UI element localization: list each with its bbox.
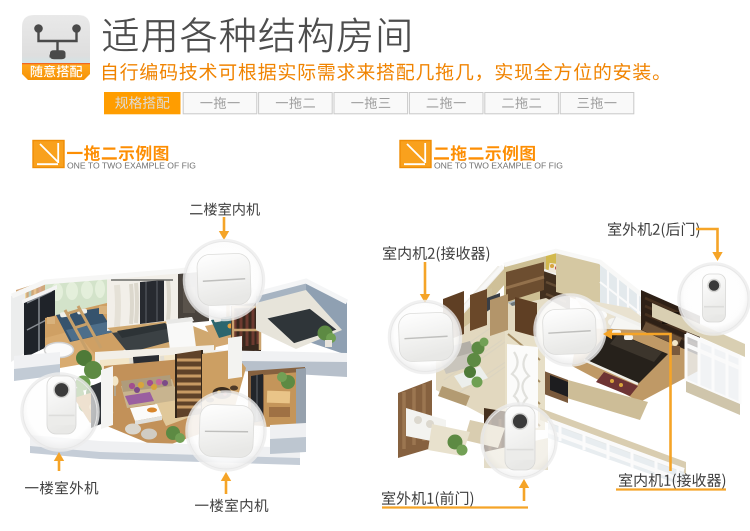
svg-text:ONE TO TWO EXAMPLE OF FIG: ONE TO TWO EXAMPLE OF FIG [67, 161, 196, 171]
svg-text:ONE TO TWO EXAMPLE OF FIG: ONE TO TWO EXAMPLE OF FIG [434, 161, 563, 171]
